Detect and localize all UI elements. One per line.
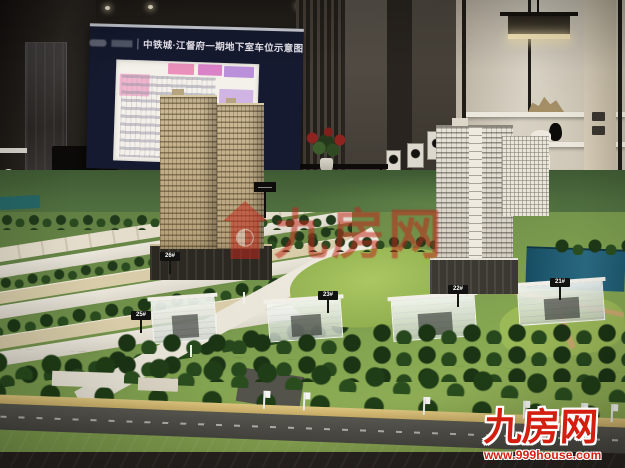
model-tower-core <box>469 127 482 263</box>
sales-center-model-photo: 中铁城·江督府一期地下室车位示意图 <box>0 0 625 468</box>
light-switch <box>592 126 605 135</box>
pendant-lamp-light <box>508 34 570 39</box>
sign-label: 26# <box>165 253 175 259</box>
street-lamp <box>243 292 245 304</box>
ceiling-spotlight <box>148 5 153 9</box>
model-lowrise-roof <box>52 371 124 389</box>
art-frame <box>386 150 401 172</box>
building-number-sign: 23# <box>318 291 338 300</box>
pendant-lamp-shade <box>508 16 570 36</box>
tree-cluster <box>553 238 625 256</box>
model-lowrise-roof <box>138 377 178 391</box>
ceiling-spotlight <box>105 6 110 10</box>
watermark-corner-text: 九房网 <box>483 409 602 447</box>
art-frame <box>407 143 424 168</box>
street-lamp <box>215 315 217 327</box>
model-tower-beige-1 <box>160 95 217 249</box>
model-roof-structure <box>452 118 468 126</box>
light-switch <box>592 112 605 121</box>
model-building-grid <box>502 136 549 216</box>
board-title: 中铁城·江督府一期地下室车位示意图 <box>143 37 304 55</box>
red-house-logo-icon <box>222 201 268 259</box>
map-zone-pink <box>168 63 194 75</box>
header-divider <box>137 38 138 49</box>
building-number-sign: 22# <box>448 285 468 294</box>
model-roof-structure <box>172 89 184 95</box>
left-shelf <box>0 148 27 153</box>
sign-label: 22# <box>453 286 463 292</box>
board-header: 中铁城·江督府一期地下室车位示意图 <box>89 30 304 60</box>
map-zone-purple <box>224 66 254 78</box>
sign-label: 21# <box>555 279 565 285</box>
watermark-center-text: 九房网 <box>274 190 445 269</box>
watermark-corner-url: www.999house.com <box>484 448 601 462</box>
watermark-center: 九房网 <box>222 190 445 269</box>
map-zone-magenta <box>198 64 222 76</box>
building-number-sign: 26# <box>160 252 180 261</box>
watermark-corner: 九房网 www.999house.com <box>484 409 601 462</box>
building-number-sign: 25# <box>131 311 151 320</box>
building-number-sign: 21# <box>550 278 570 287</box>
model-roof-structure <box>226 98 236 103</box>
sign-label: 25# <box>136 312 146 318</box>
model-water-edge <box>0 195 40 210</box>
brand-logo-icon <box>112 39 133 47</box>
developer-logo-icon <box>89 39 106 46</box>
sign-label: 23# <box>323 292 333 298</box>
